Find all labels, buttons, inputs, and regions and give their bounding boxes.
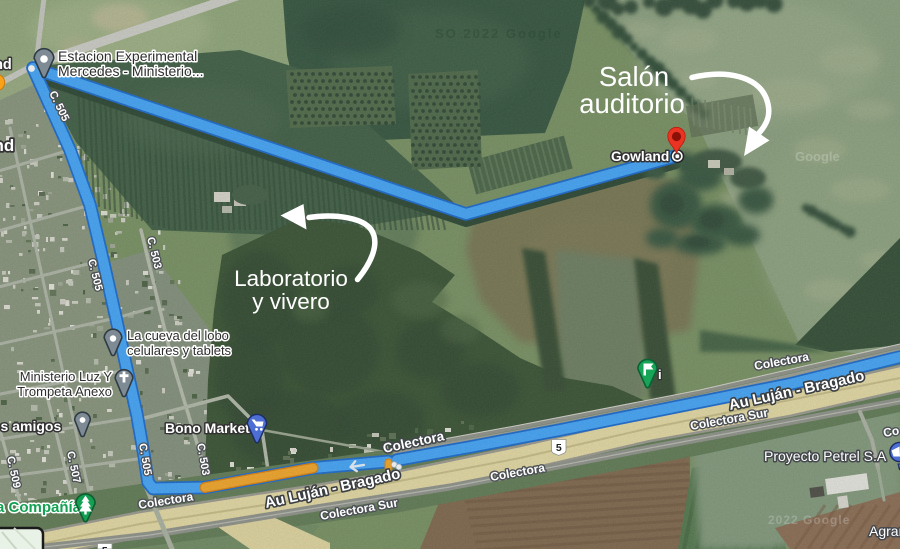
- svg-text:Bono Market: Bono Market: [165, 420, 250, 436]
- svg-text:5: 5: [102, 545, 108, 549]
- svg-text:La cueva del lobo: La cueva del lobo: [127, 328, 229, 343]
- svg-text:and: and: [0, 136, 14, 155]
- svg-text:SO 2022 Google: SO 2022 Google: [435, 26, 563, 41]
- svg-text:2022 Google: 2022 Google: [768, 513, 850, 527]
- svg-text:Google: Google: [795, 149, 840, 164]
- svg-text:Proyecto Petrel S.A: Proyecto Petrel S.A: [764, 448, 887, 464]
- svg-text:Co: Co: [882, 423, 900, 440]
- svg-text:Laboratorio: Laboratorio: [234, 266, 348, 291]
- svg-text:y vivero: y vivero: [252, 289, 330, 314]
- svg-text:Ministerio Luz Y: Ministerio Luz Y: [20, 369, 113, 384]
- svg-text:and: and: [0, 57, 12, 73]
- svg-text:auditorio: auditorio: [579, 88, 685, 119]
- svg-text:Gowland: Gowland: [611, 149, 669, 164]
- svg-text:celulares y tablets: celulares y tablets: [127, 343, 232, 358]
- svg-text:os amigos: os amigos: [0, 418, 61, 434]
- svg-text:Estacion Experimental: Estacion Experimental: [58, 48, 197, 64]
- svg-text:a Compañía: a Compañía: [0, 499, 82, 516]
- svg-text:Trompeta Anexo: Trompeta Anexo: [17, 384, 112, 399]
- svg-text:Mercedes - Ministerio...: Mercedes - Ministerio...: [58, 63, 203, 79]
- svg-text:5: 5: [556, 442, 562, 454]
- svg-text:i: i: [658, 367, 662, 382]
- svg-text:Agrar: Agrar: [869, 523, 900, 539]
